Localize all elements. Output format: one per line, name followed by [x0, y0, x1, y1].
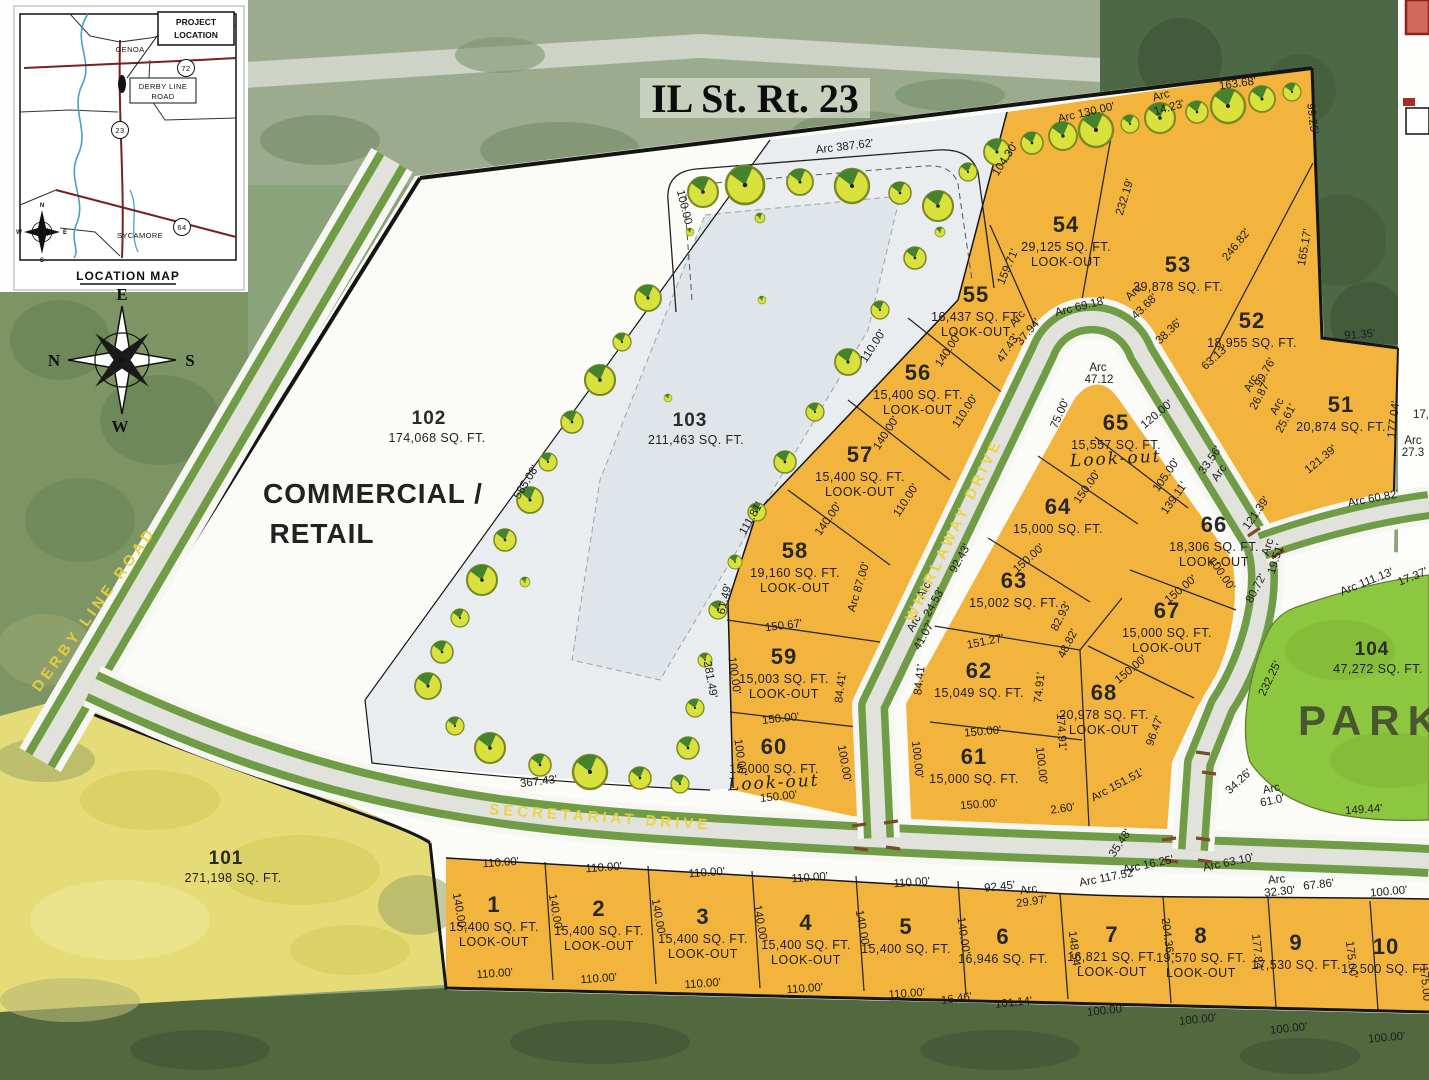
lot-59-sqft: 15,003 SQ. FT. [739, 672, 829, 686]
genoa-label: GENOA [115, 45, 144, 54]
lot-2-lookout: LOOK-OUT [564, 939, 634, 953]
compass-s-label: S [185, 351, 194, 370]
route-64-shield: 64 [177, 223, 186, 232]
lot-52-sqft: 18,955 SQ. FT. [1207, 336, 1297, 350]
lot-55-lookout: LOOK-OUT [941, 325, 1011, 339]
lot-66-number: 66 [1201, 512, 1227, 537]
tree-icon [1121, 115, 1139, 133]
tree-icon [959, 163, 977, 181]
lot-57-lookout: LOOK-OUT [825, 485, 895, 499]
lot-1-sqft: 15,400 SQ. FT. [449, 920, 539, 934]
lot-55-sqft: 16,437 SQ. FT. [931, 310, 1021, 324]
dimension-label: 110.00' [476, 967, 513, 982]
lot-9-number: 9 [1289, 930, 1302, 955]
park-label: PARK [1298, 697, 1429, 744]
tree-icon [688, 177, 718, 207]
location-map-inset: PROJECT LOCATION GENOA DERBY LINE ROAD S… [14, 6, 244, 290]
lot-64-sqft: 15,000 SQ. FT. [1013, 522, 1103, 536]
lot-68-sqft: 20,978 SQ. FT. [1059, 708, 1149, 722]
right-margin-paper [1398, 0, 1429, 560]
lot-53-number: 53 [1165, 252, 1191, 277]
dimension-label: 27.3 [1402, 447, 1424, 459]
tree-icon [451, 609, 469, 627]
lot-3-sqft: 15,400 SQ. FT. [658, 932, 748, 946]
svg-text:E: E [63, 230, 67, 236]
lot-62-number: 62 [966, 658, 992, 683]
svg-text:W: W [16, 230, 22, 236]
tree-icon [889, 182, 911, 204]
derby-line-road-box-2: ROAD [151, 92, 174, 101]
tree-icon [585, 365, 615, 395]
lot-63-number: 63 [1001, 568, 1027, 593]
lot-66-lookout: LOOK-OUT [1179, 555, 1249, 569]
tree-icon [664, 394, 672, 402]
lot-7-lookout: LOOK-OUT [1077, 965, 1147, 979]
lot-60-number: 60 [761, 734, 787, 759]
tree-icon [671, 775, 689, 793]
lot-65-number: 65 [1103, 410, 1129, 435]
lot-5-number: 5 [899, 914, 912, 939]
lot-68-number: 68 [1091, 680, 1117, 705]
tree-icon [539, 453, 557, 471]
lot-57-sqft: 15,400 SQ. FT. [815, 470, 905, 484]
tree-icon [787, 169, 813, 195]
white-legend-box [1406, 108, 1429, 134]
dimension-label: 110.00' [580, 972, 617, 987]
lot-58-number: 58 [782, 538, 808, 563]
lot-56-sqft: 15,400 SQ. FT. [873, 388, 963, 402]
dimension-label: Arc [1404, 435, 1422, 447]
lot-6-sqft: 16,946 SQ. FT. [958, 952, 1048, 966]
lot-64-number: 64 [1045, 494, 1071, 519]
lot-2-sqft: 15,400 SQ. FT. [554, 924, 644, 938]
dimension-label: 17, [1413, 409, 1429, 421]
lot-67-number: 67 [1154, 598, 1180, 623]
lot-1-lookout: LOOK-OUT [459, 935, 529, 949]
lot-104-sqft: 47,272 SQ. FT. [1333, 662, 1423, 676]
lot-54-lookout: LOOK-OUT [1031, 255, 1101, 269]
lot-103-number: 103 [673, 410, 708, 431]
lot-51-number: 51 [1328, 392, 1354, 417]
lot-67-lookout: LOOK-OUT [1132, 641, 1202, 655]
tree-icon [494, 529, 516, 551]
dimension-label: 110.00' [482, 856, 519, 871]
dimension-label: 91.35' [1344, 328, 1376, 342]
subdivision-plat-map: Arc 387.62'100.00Arc 130.00'163.68'Arc14… [0, 0, 1429, 1080]
lot-54-number: 54 [1053, 212, 1079, 237]
tree-icon [613, 333, 631, 351]
tree-icon [629, 767, 651, 789]
lot-53-sqft: 39,878 SQ. FT. [1133, 280, 1223, 294]
tree-icon [1211, 89, 1245, 123]
route-72-shield: 72 [181, 64, 190, 73]
tree-icon [446, 717, 464, 735]
tree-icon [774, 451, 796, 473]
tree-icon [475, 733, 505, 763]
lot-59-number: 59 [771, 644, 797, 669]
lot-8-lookout: LOOK-OUT [1166, 966, 1236, 980]
dimension-label: 110.00' [684, 977, 721, 992]
lot-56-number: 56 [905, 360, 931, 385]
lot-2-number: 2 [592, 896, 605, 921]
lot-1-number: 1 [487, 892, 500, 917]
lot-66-sqft: 18,306 SQ. FT. [1169, 540, 1259, 554]
tree-icon [415, 673, 441, 699]
dimension-label: 110.00' [688, 866, 725, 881]
location-map-caption: LOCATION MAP [76, 269, 180, 283]
lot-54-sqft: 29,125 SQ. FT. [1021, 240, 1111, 254]
derby-line-road-box-1: DERBY LINE [139, 82, 187, 91]
tree-icon [1186, 101, 1208, 123]
lot-10-sqft: 17,500 SQ. FT. [1341, 962, 1429, 976]
lot-4-number: 4 [799, 910, 812, 935]
dimension-label: 110.00' [893, 876, 930, 891]
tree-icon [728, 555, 742, 569]
dimension-label: 110.00' [585, 861, 622, 876]
lot-101-number: 101 [209, 848, 244, 869]
dimension-label: 110.00' [786, 982, 823, 997]
lot-61-sqft: 15,000 SQ. FT. [929, 772, 1019, 786]
lot-7-number: 7 [1105, 922, 1118, 947]
tree-icon [923, 191, 953, 221]
project-location-label-1: PROJECT [176, 17, 217, 27]
lot-104-number: 104 [1355, 639, 1390, 660]
tree-icon [755, 213, 765, 223]
lot-6-number: 6 [996, 924, 1009, 949]
title-group: IL St. Rt. 23 [640, 76, 870, 121]
lot-56-lookout: LOOK-OUT [883, 403, 953, 417]
lot-101-sqft: 271,198 SQ. FT. [184, 871, 281, 885]
tree-icon [904, 247, 926, 269]
lot-59-lookout: LOOK-OUT [749, 687, 819, 701]
tree-icon [467, 565, 497, 595]
tree-icon [677, 737, 699, 759]
commercial-retail-label-1: COMMERCIAL / [263, 478, 483, 509]
tree-icon [520, 577, 530, 587]
tree-icon [726, 166, 764, 204]
lot-9-sqft: 17,530 SQ. FT. [1251, 958, 1341, 972]
tree-icon [431, 641, 453, 663]
dimension-label: Arc [1089, 362, 1107, 374]
compass-n-label: N [48, 351, 61, 370]
lot-102-sqft: 174,068 SQ. FT. [388, 431, 485, 445]
tree-icon [871, 301, 889, 319]
red-legend-box [1406, 0, 1429, 34]
lot-5-sqft: 15,400 SQ. FT. [861, 942, 951, 956]
dimension-label: 47.12 [1085, 374, 1114, 386]
lot-3-lookout: LOOK-OUT [668, 947, 738, 961]
compass-w-label: W [112, 417, 129, 436]
tree-icon [686, 699, 704, 717]
project-location-label-2: LOCATION [174, 30, 218, 40]
lot-51-sqft: 20,874 SQ. FT. [1296, 420, 1386, 434]
tree-icon [935, 227, 945, 237]
lot-52-number: 52 [1239, 308, 1265, 333]
lot-7-sqft: 16,821 SQ. FT. [1067, 950, 1157, 964]
svg-text:N: N [40, 203, 44, 209]
lot-62-sqft: 15,049 SQ. FT. [934, 686, 1024, 700]
tree-icon [573, 755, 607, 789]
project-site-marker [118, 75, 126, 93]
page-title: IL St. Rt. 23 [651, 76, 859, 121]
tree-icon [835, 349, 861, 375]
plat-map-page: Arc 387.62'100.00Arc 130.00'163.68'Arc14… [0, 0, 1429, 1080]
tree-icon [1049, 122, 1077, 150]
tree-icon [1283, 83, 1301, 101]
sycamore-label: SYCAMORE [117, 231, 163, 240]
lot-63-sqft: 15,002 SQ. FT. [969, 596, 1059, 610]
lot-102-number: 102 [412, 408, 447, 429]
lot-67-sqft: 15,000 SQ. FT. [1122, 626, 1212, 640]
lot-68-lookout: LOOK-OUT [1069, 723, 1139, 737]
lot-61-number: 61 [961, 744, 987, 769]
svg-text:S: S [40, 258, 44, 264]
route-23-shield: 23 [115, 126, 124, 135]
lot-10-number: 10 [1373, 934, 1399, 959]
lot-58-sqft: 19,160 SQ. FT. [750, 566, 840, 580]
dimension-label: 110.00' [888, 987, 925, 1002]
tree-icon [758, 296, 766, 304]
tree-icon [635, 285, 661, 311]
tree-icon [1021, 132, 1043, 154]
tree-icon [561, 411, 583, 433]
tree-icon [686, 228, 694, 236]
compass-e-label: E [116, 285, 127, 304]
lot-57-number: 57 [847, 442, 873, 467]
commercial-retail-label-2: RETAIL [269, 518, 374, 549]
lot-8-number: 8 [1194, 923, 1207, 948]
lot-8-sqft: 19,570 SQ. FT. [1156, 951, 1246, 965]
lot-3-number: 3 [696, 904, 709, 929]
dimension-label: 110.00' [791, 871, 828, 886]
lot-103-sqft: 211,463 SQ. FT. [648, 433, 744, 447]
lot-58-lookout: LOOK-OUT [760, 581, 830, 595]
tree-icon [835, 169, 869, 203]
lot-55-number: 55 [963, 282, 989, 307]
tree-icon [529, 754, 551, 776]
lot-4-sqft: 15,400 SQ. FT. [761, 938, 851, 952]
red-mark [1403, 98, 1415, 106]
lot-4-lookout: LOOK-OUT [771, 953, 841, 967]
tree-icon [1249, 86, 1275, 112]
tree-icon [806, 403, 824, 421]
